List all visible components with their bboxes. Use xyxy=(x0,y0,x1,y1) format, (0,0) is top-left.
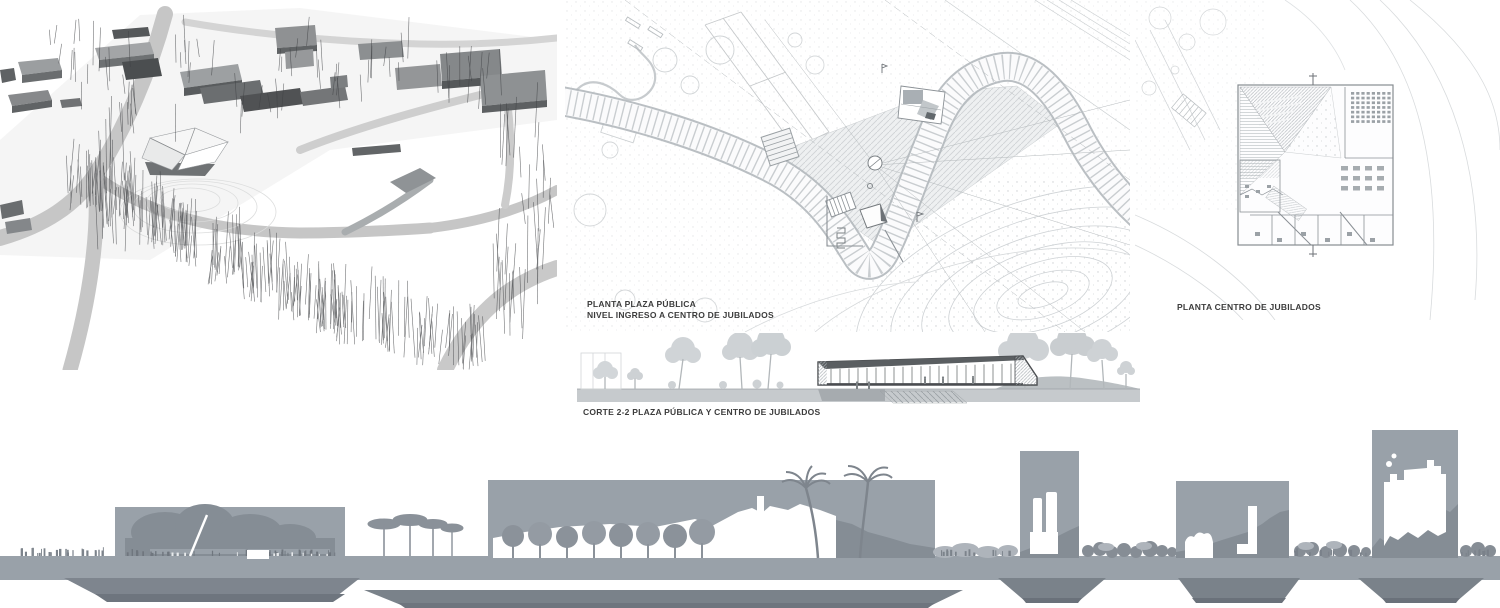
white-chimney xyxy=(757,496,764,522)
hedge-2 xyxy=(1082,541,1177,558)
label-plan-centro: PLANTA CENTRO DE JUBILADOS xyxy=(1177,302,1321,313)
label-plan-plaza-line2: NIVEL INGRESO A CENTRO DE JUBILADOS xyxy=(587,310,774,321)
label-plan-plaza: PLANTA PLAZA PÚBLICA NIVEL INGRESO A CEN… xyxy=(587,299,774,321)
plaza-fountain xyxy=(868,156,882,170)
white-kiosk xyxy=(247,550,269,559)
panel-silhouette-elevation xyxy=(0,420,1500,608)
panel-section-drawing: CORTE 2-2 PLAZA PÚBLICA Y CENTRO DE JUBI… xyxy=(575,333,1140,420)
ramp-hatch xyxy=(880,391,967,403)
strip-figures-left xyxy=(21,547,104,556)
hedge-1 xyxy=(933,543,1018,558)
silhouette-elevation-drawing xyxy=(0,420,1500,608)
white-tower xyxy=(1046,492,1057,538)
presentation-board: PLANTA PLAZA PÚBLICA NIVEL INGRESO A CEN… xyxy=(0,0,1500,608)
block-trees-left xyxy=(115,504,345,559)
hedge-4 xyxy=(1460,542,1496,557)
hedge-3 xyxy=(1294,541,1371,558)
tower-panel-3 xyxy=(1372,430,1458,558)
dark-paving-patch xyxy=(390,168,436,193)
tower-panel-2 xyxy=(1176,481,1289,558)
panel-site-plan-plaza: PLANTA PLAZA PÚBLICA NIVEL INGRESO A CEN… xyxy=(565,0,1130,332)
underground-trapezoids xyxy=(64,578,1484,608)
block-main xyxy=(488,466,935,558)
floor-plan-drawing xyxy=(1135,0,1500,320)
white-tower xyxy=(1033,498,1042,538)
tower-panel-1 xyxy=(1020,451,1079,558)
aerial-render-drawing xyxy=(0,0,557,370)
ground-strip xyxy=(0,556,1500,580)
label-plan-plaza-line1: PLANTA PLAZA PÚBLICA xyxy=(587,299,774,310)
umbrella-trees xyxy=(368,515,463,557)
site-plan-drawing xyxy=(565,0,1130,332)
panel-floor-plan-centro: PLANTA CENTRO DE JUBILADOS xyxy=(1135,0,1500,325)
label-section: CORTE 2-2 PLAZA PÚBLICA Y CENTRO DE JUBI… xyxy=(583,407,820,418)
service-room-hatch xyxy=(1240,160,1280,178)
upper-right-pavilion-plan xyxy=(898,86,945,124)
panel-aerial-render xyxy=(0,0,557,370)
